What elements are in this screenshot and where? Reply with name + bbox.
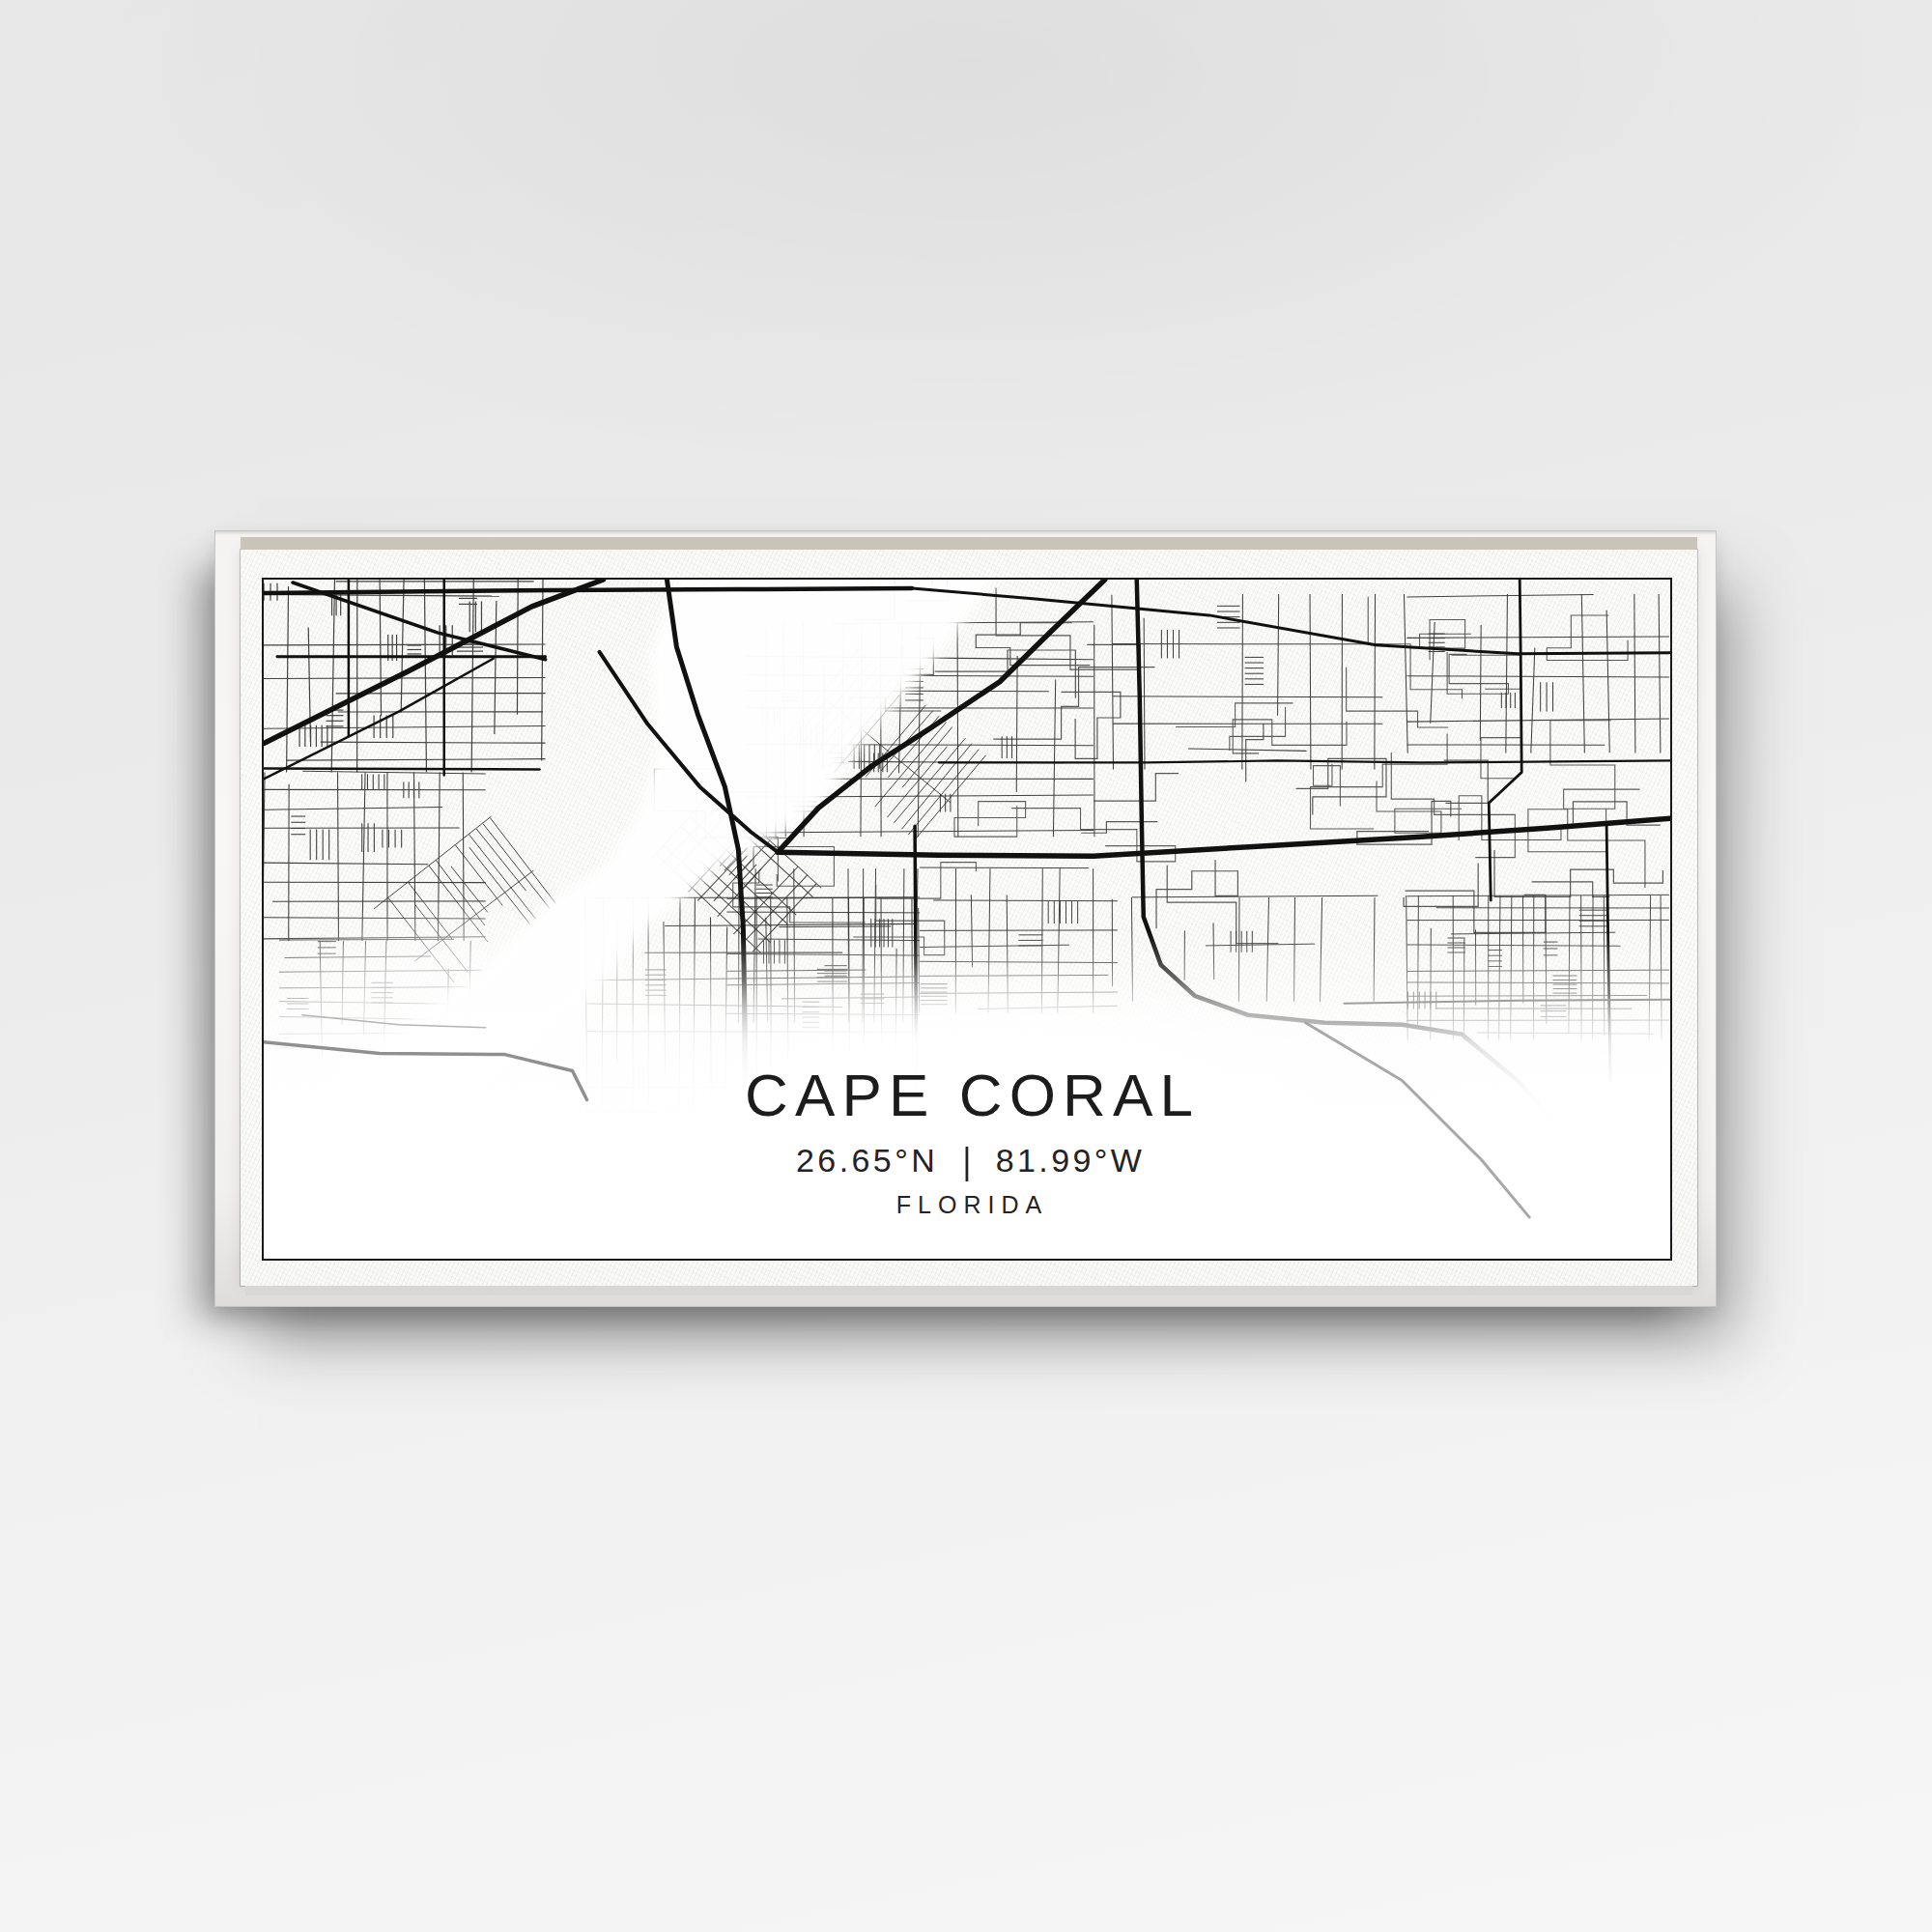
float-frame: CAPE CORAL 26.65°N|81.99°W FLORIDA xyxy=(214,530,1717,1307)
framed-map-print: CAPE CORAL 26.65°N|81.99°W FLORIDA xyxy=(214,530,1717,1307)
wall: CAPE CORAL 26.65°N|81.99°W FLORIDA xyxy=(0,0,1932,1932)
map-svg xyxy=(264,580,1670,1259)
canvas-print: CAPE CORAL 26.65°N|81.99°W FLORIDA xyxy=(241,550,1697,1286)
map-border xyxy=(262,578,1672,1261)
